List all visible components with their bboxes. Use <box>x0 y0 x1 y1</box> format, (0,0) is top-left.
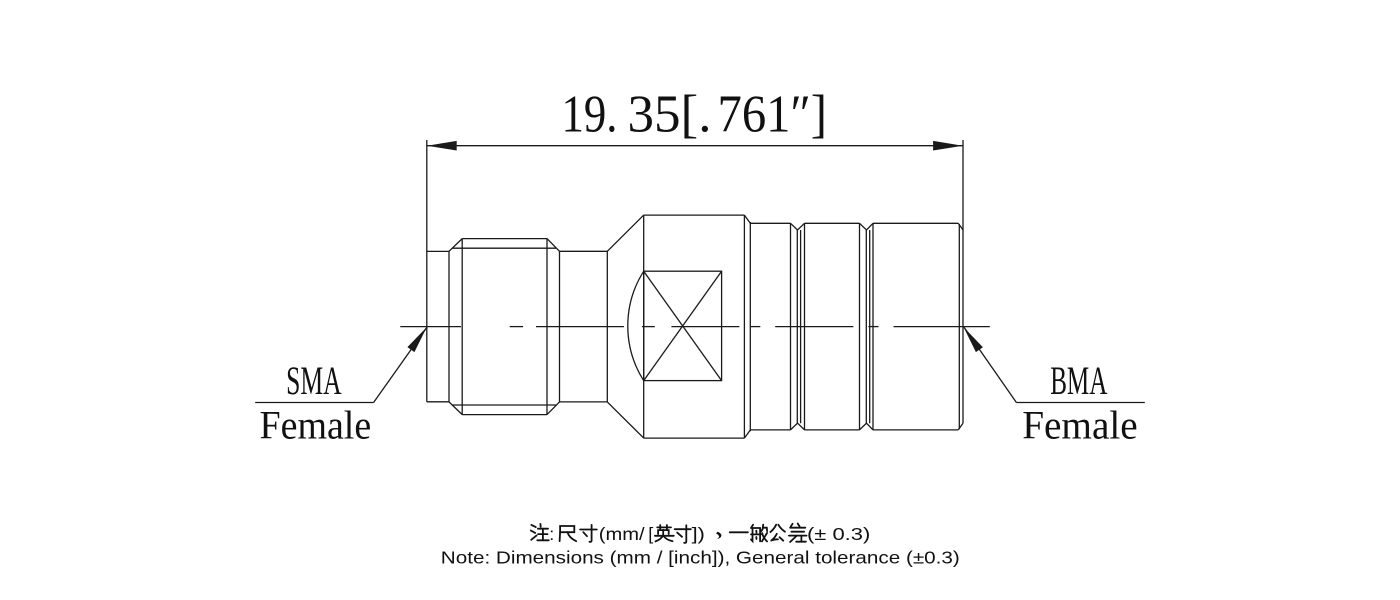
svg-text:35[.: 35[. <box>628 85 712 143</box>
svg-text:BMA: BMA <box>1050 358 1107 403</box>
svg-text:SMA: SMA <box>286 358 342 403</box>
svg-text:Female: Female <box>1022 403 1137 448</box>
svg-text:(mm/: (mm/ <box>599 524 645 544</box>
svg-text:761″]: 761″] <box>718 85 828 143</box>
svg-text::: : <box>549 524 554 544</box>
svg-text:Note: Dimensions (mm / [inch]): Note: Dimensions (mm / [inch]), General … <box>441 548 960 568</box>
svg-text:Female: Female <box>260 403 372 448</box>
svg-text:19.: 19. <box>562 85 618 143</box>
svg-text:(± 0.3): (± 0.3) <box>807 524 870 544</box>
svg-text:[: [ <box>648 524 653 544</box>
svg-text:]): ]) <box>692 524 705 544</box>
